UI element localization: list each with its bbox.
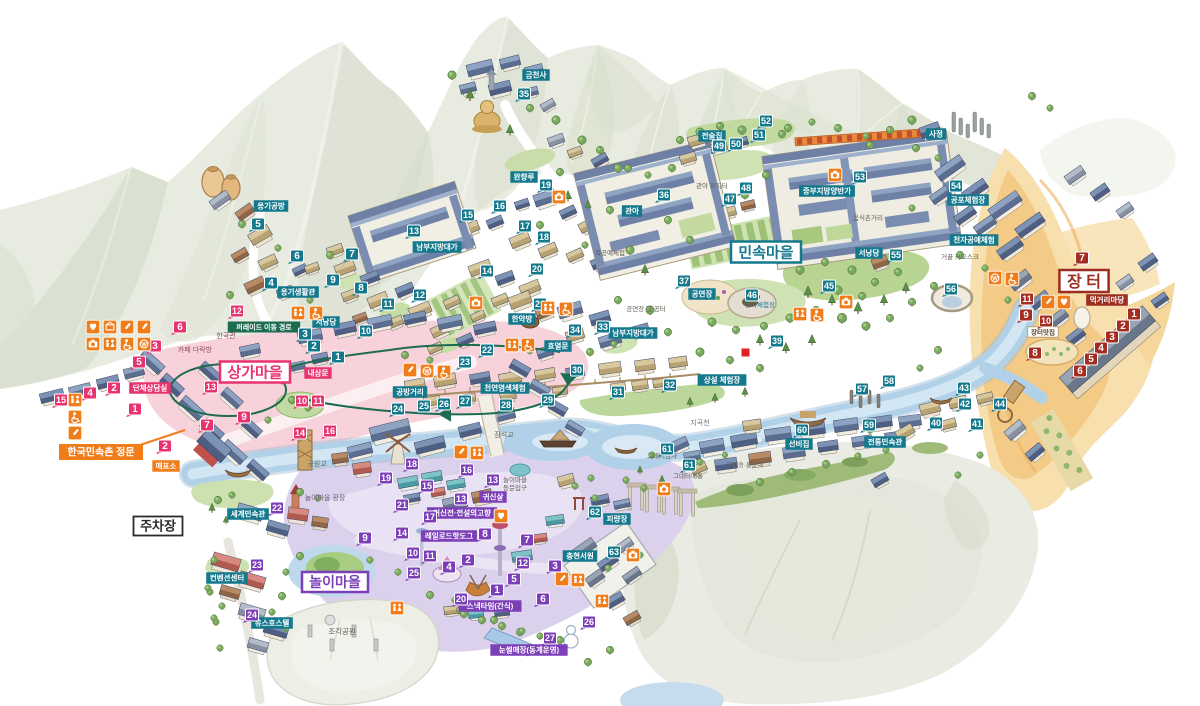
svg-text:관아: 관아 (625, 206, 639, 216)
svg-text:54: 54 (951, 181, 961, 191)
svg-text:컨벤션센터: 컨벤션센터 (210, 573, 245, 583)
svg-text:장 터: 장 터 (1067, 273, 1101, 291)
svg-text:4: 4 (446, 562, 452, 573)
svg-text:먹거리마당: 먹거리마당 (1090, 295, 1125, 305)
svg-text:56: 56 (946, 284, 956, 294)
svg-text:피량장: 피량장 (607, 514, 628, 524)
svg-text:52: 52 (761, 116, 771, 126)
svg-text:18: 18 (539, 232, 549, 242)
svg-text:민속마을: 민속마을 (738, 244, 793, 261)
svg-text:효열문: 효열문 (548, 341, 569, 351)
svg-text:완향루: 완향루 (514, 172, 535, 182)
svg-text:7: 7 (524, 535, 530, 546)
svg-text:5: 5 (1088, 354, 1094, 365)
svg-text:3: 3 (302, 329, 308, 340)
svg-text:12: 12 (415, 290, 425, 300)
svg-text:33: 33 (598, 322, 608, 332)
svg-text:25: 25 (419, 401, 429, 411)
svg-text:9: 9 (241, 412, 247, 423)
svg-text:7: 7 (204, 420, 210, 431)
svg-text:놀이마을 광장: 놀이마을 광장 (305, 493, 346, 502)
svg-text:57: 57 (857, 384, 867, 394)
svg-text:공원교: 공원교 (307, 459, 327, 468)
svg-text:양점승·물솟대: 양점승·물솟대 (727, 461, 764, 469)
svg-text:59: 59 (864, 420, 874, 430)
svg-text:6: 6 (177, 322, 183, 333)
svg-text:거꿀 키오스크: 거꿀 키오스크 (941, 252, 979, 261)
svg-text:37: 37 (679, 276, 689, 286)
svg-text:천연염색체험: 천연염색체험 (484, 383, 525, 393)
svg-text:42: 42 (960, 399, 970, 409)
svg-text:40: 40 (931, 418, 941, 428)
svg-text:놀이마을: 놀이마을 (309, 574, 361, 590)
svg-text:9: 9 (1023, 310, 1029, 321)
svg-text:스낵타임(간식): 스낵타임(간식) (467, 601, 514, 611)
svg-text:공연장: 공연장 (692, 289, 713, 299)
svg-text:카페 다락방: 카페 다락방 (178, 345, 213, 354)
svg-text:11: 11 (383, 299, 393, 309)
svg-text:55: 55 (891, 250, 901, 260)
svg-text:음식촌거리: 음식촌거리 (853, 213, 883, 222)
svg-text:13: 13 (206, 382, 216, 392)
svg-text:27: 27 (545, 633, 555, 643)
svg-text:7: 7 (349, 249, 355, 260)
svg-text:35: 35 (519, 89, 529, 99)
svg-text:39: 39 (772, 336, 782, 346)
svg-text:장터맛집: 장터맛집 (1031, 327, 1055, 336)
svg-text:주차장: 주차장 (140, 519, 176, 534)
svg-text:W: W (992, 276, 998, 282)
svg-text:관아 휴지터: 관아 휴지터 (696, 181, 728, 190)
svg-text:61: 61 (684, 460, 694, 470)
svg-text:세계민속관: 세계민속관 (231, 509, 266, 519)
svg-text:서낭당: 서낭당 (859, 248, 880, 258)
svg-text:남부지방대가: 남부지방대가 (612, 328, 653, 338)
svg-text:51: 51 (754, 130, 764, 140)
svg-text:2: 2 (111, 383, 117, 394)
svg-text:그네터매통: 그네터매통 (673, 471, 703, 480)
svg-text:충현서원: 충현서원 (566, 551, 594, 561)
svg-text:43: 43 (959, 383, 969, 393)
svg-text:30: 30 (572, 365, 582, 375)
svg-text:27: 27 (460, 396, 470, 406)
svg-text:22: 22 (482, 345, 492, 355)
svg-text:2: 2 (162, 441, 168, 452)
svg-text:15: 15 (463, 210, 473, 220)
svg-text:6: 6 (1077, 366, 1083, 377)
svg-text:16: 16 (495, 201, 505, 211)
svg-text:62: 62 (590, 507, 600, 517)
svg-text:44: 44 (995, 399, 1005, 409)
svg-text:22: 22 (272, 503, 282, 513)
svg-text:24: 24 (247, 610, 257, 620)
svg-text:60: 60 (797, 425, 807, 435)
svg-text:34: 34 (570, 325, 580, 335)
svg-text:4: 4 (1098, 343, 1104, 354)
svg-text:목공예체험: 목공예체험 (595, 248, 625, 257)
svg-text:W: W (141, 342, 147, 348)
svg-text:23: 23 (252, 560, 262, 570)
svg-text:귀신전·전설의고향: 귀신전·전설의고향 (433, 508, 491, 518)
svg-text:61: 61 (662, 444, 672, 454)
svg-text:23: 23 (460, 357, 470, 367)
svg-text:동문입구: 동문입구 (503, 484, 527, 492)
svg-text:5: 5 (255, 219, 261, 230)
svg-text:11: 11 (1022, 294, 1032, 304)
svg-text:잠석교: 잠석교 (494, 430, 514, 439)
svg-text:20: 20 (456, 594, 466, 604)
svg-text:내삼문: 내삼문 (308, 368, 329, 378)
svg-text:9: 9 (362, 533, 368, 544)
svg-text:21: 21 (397, 500, 407, 510)
svg-text:45: 45 (824, 281, 834, 291)
svg-text:공방거리: 공방거리 (396, 387, 424, 397)
svg-text:10: 10 (361, 326, 371, 336)
svg-text:5: 5 (511, 574, 517, 585)
svg-text:12: 12 (518, 558, 528, 568)
svg-text:19: 19 (541, 180, 551, 190)
svg-text:6: 6 (294, 251, 300, 262)
svg-text:18: 18 (407, 459, 417, 469)
svg-text:레일로드핫도그: 레일로드핫도그 (425, 531, 473, 541)
svg-text:눈썰매장(동계운영): 눈썰매장(동계운영) (499, 645, 560, 655)
svg-text:2: 2 (465, 555, 471, 566)
svg-text:25: 25 (409, 568, 419, 578)
svg-text:16: 16 (462, 465, 472, 475)
svg-text:11: 11 (313, 396, 323, 406)
svg-text:11: 11 (425, 551, 435, 561)
svg-text:옹기공방: 옹기공방 (257, 201, 285, 211)
svg-text:2: 2 (311, 341, 317, 352)
svg-text:28: 28 (501, 400, 511, 410)
svg-text:14: 14 (295, 428, 305, 438)
svg-text:지곡천: 지곡천 (690, 418, 709, 427)
svg-text:48: 48 (741, 183, 751, 193)
svg-text:전통민속관: 전통민속관 (868, 437, 903, 447)
svg-text:4: 4 (87, 388, 93, 399)
svg-text:58: 58 (884, 376, 894, 386)
svg-text:W: W (424, 369, 430, 375)
svg-text:한국민속촌 정문: 한국민속촌 정문 (67, 446, 134, 459)
svg-text:퍼레이드 이동 경로: 퍼레이드 이동 경로 (236, 323, 292, 332)
svg-text:8: 8 (482, 529, 488, 540)
svg-text:8: 8 (1032, 348, 1038, 359)
svg-text:상설 체험장: 상설 체험장 (704, 375, 741, 385)
svg-text:2: 2 (1120, 321, 1126, 332)
svg-text:17: 17 (520, 221, 530, 231)
svg-text:상가마을: 상가마을 (227, 364, 282, 381)
svg-text:24: 24 (393, 404, 403, 414)
svg-text:10: 10 (408, 548, 418, 558)
svg-text:13: 13 (409, 226, 419, 236)
svg-text:조각공원: 조각공원 (328, 626, 356, 636)
svg-text:6: 6 (540, 594, 546, 605)
svg-text:50: 50 (731, 139, 741, 149)
svg-text:53: 53 (855, 172, 865, 182)
svg-text:14: 14 (397, 528, 407, 538)
svg-text:15: 15 (56, 395, 66, 405)
svg-text:20: 20 (532, 264, 542, 274)
svg-text:8: 8 (358, 283, 364, 294)
svg-text:13: 13 (488, 475, 498, 485)
svg-text:12: 12 (232, 306, 242, 316)
svg-text:금천사: 금천사 (526, 70, 547, 80)
svg-text:1: 1 (1131, 309, 1137, 320)
svg-text:10: 10 (1041, 316, 1051, 326)
svg-text:49: 49 (714, 141, 724, 151)
svg-text:사정: 사정 (929, 129, 943, 139)
svg-text:1: 1 (132, 404, 138, 415)
svg-text:유스호스텔: 유스호스텔 (255, 618, 290, 628)
svg-text:한국관: 한국관 (216, 331, 236, 340)
svg-text:옹기생활관: 옹기생활관 (281, 287, 316, 297)
svg-text:중부지방양반가: 중부지방양반가 (803, 186, 851, 196)
svg-text:10: 10 (297, 396, 307, 406)
svg-text:매표소: 매표소 (156, 461, 177, 471)
svg-text:1: 1 (494, 585, 500, 596)
svg-text:3: 3 (552, 561, 558, 572)
svg-text:26: 26 (439, 399, 449, 409)
svg-text:15: 15 (422, 481, 432, 491)
svg-text:13: 13 (456, 494, 466, 504)
svg-text:32: 32 (665, 380, 675, 390)
svg-text:17: 17 (425, 512, 435, 522)
svg-text:7: 7 (1079, 253, 1085, 264)
svg-text:공포체험장: 공포체험장 (951, 195, 986, 205)
svg-text:선비집: 선비집 (789, 439, 810, 449)
svg-text:36: 36 (659, 190, 669, 200)
svg-text:4: 4 (268, 278, 274, 289)
svg-text:16: 16 (325, 426, 335, 436)
svg-text:31: 31 (613, 387, 623, 397)
svg-text:9: 9 (330, 275, 336, 286)
svg-text:19: 19 (381, 473, 391, 483)
svg-text:전술집: 전술집 (702, 131, 723, 141)
svg-text:놀이마을: 놀이마을 (503, 475, 527, 484)
svg-text:63: 63 (609, 547, 619, 557)
svg-text:5: 5 (136, 357, 142, 368)
svg-text:1: 1 (335, 352, 341, 363)
svg-text:남부지방대가: 남부지방대가 (416, 242, 457, 252)
svg-text:단체상담실: 단체상담실 (133, 383, 168, 393)
svg-text:공연장 및 공터: 공연장 및 공터 (626, 304, 666, 313)
svg-text:3: 3 (152, 341, 158, 352)
svg-text:47: 47 (725, 194, 735, 204)
svg-text:46: 46 (747, 290, 757, 300)
svg-text:귀신살: 귀신살 (483, 492, 504, 502)
svg-text:41: 41 (972, 419, 982, 429)
svg-text:14: 14 (482, 266, 492, 276)
svg-text:26: 26 (584, 617, 594, 627)
svg-text:천자공예체험: 천자공예체험 (953, 235, 994, 245)
svg-text:한약방: 한약방 (512, 314, 533, 324)
svg-text:29: 29 (543, 395, 553, 405)
svg-text:3: 3 (1109, 332, 1115, 343)
